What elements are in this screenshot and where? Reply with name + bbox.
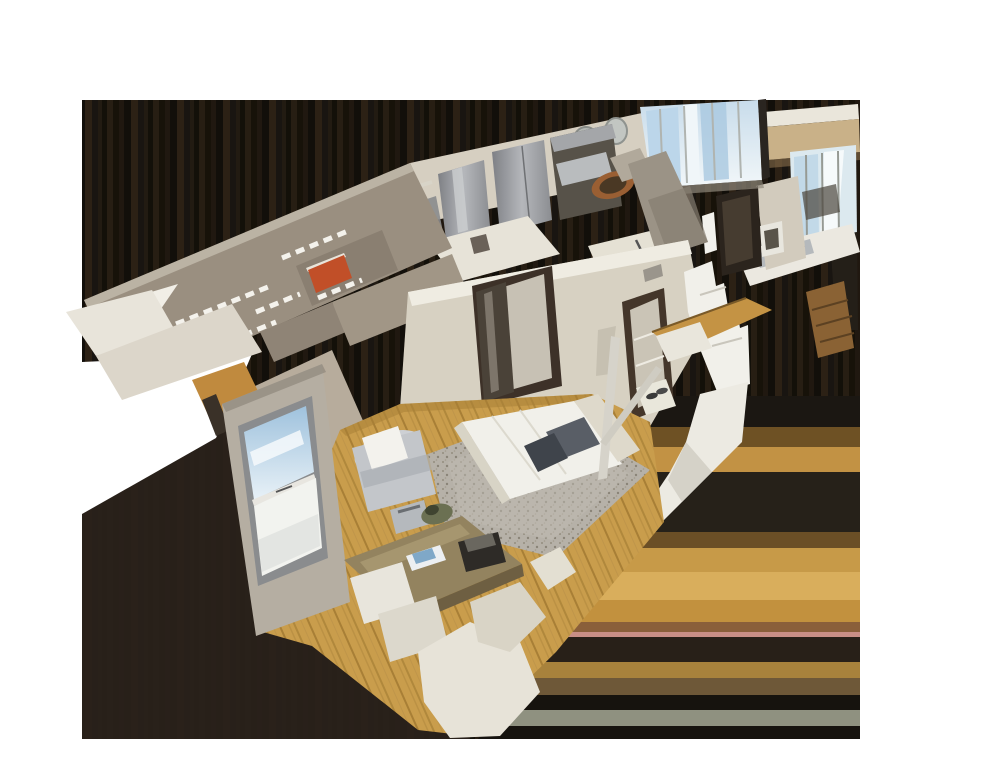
- hall-doorway-inner: [722, 195, 753, 266]
- smear-band: [460, 726, 862, 739]
- hall-picture-art: [764, 228, 779, 250]
- dollhouse-viewport[interactable]: [0, 0, 994, 779]
- dollhouse-3d-view: [0, 0, 994, 779]
- right-window-mullion: [838, 151, 839, 240]
